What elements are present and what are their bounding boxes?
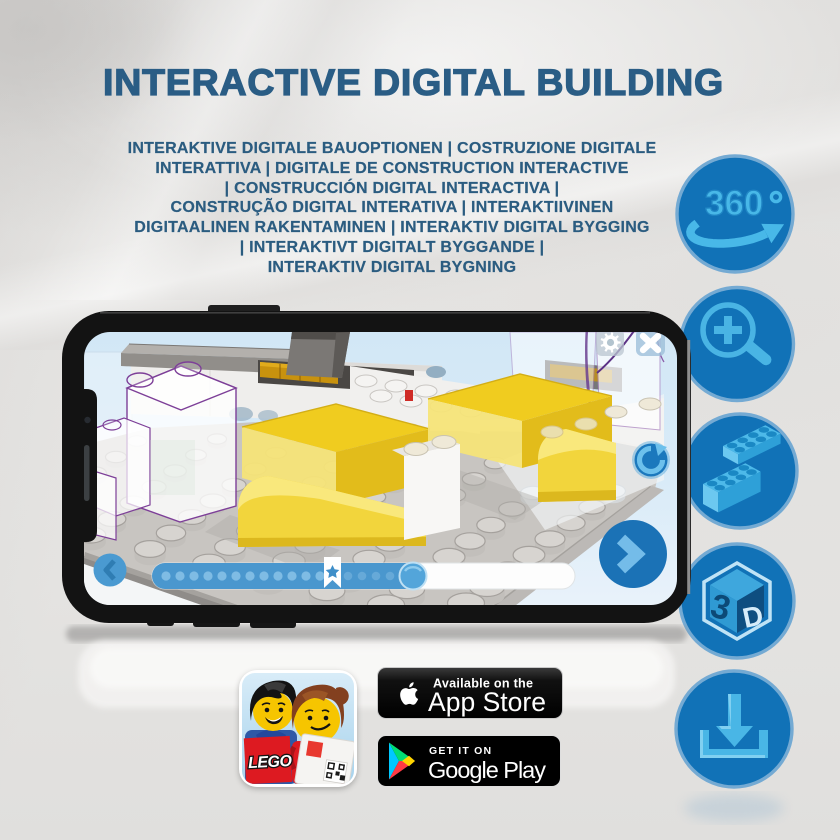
svg-text:Google Play: Google Play bbox=[428, 757, 546, 783]
svg-text:App Store: App Store bbox=[428, 687, 546, 717]
svg-text:360: 360 bbox=[705, 184, 763, 223]
svg-text:GET IT ON: GET IT ON bbox=[429, 745, 492, 757]
svg-text:LEGO: LEGO bbox=[248, 753, 293, 772]
